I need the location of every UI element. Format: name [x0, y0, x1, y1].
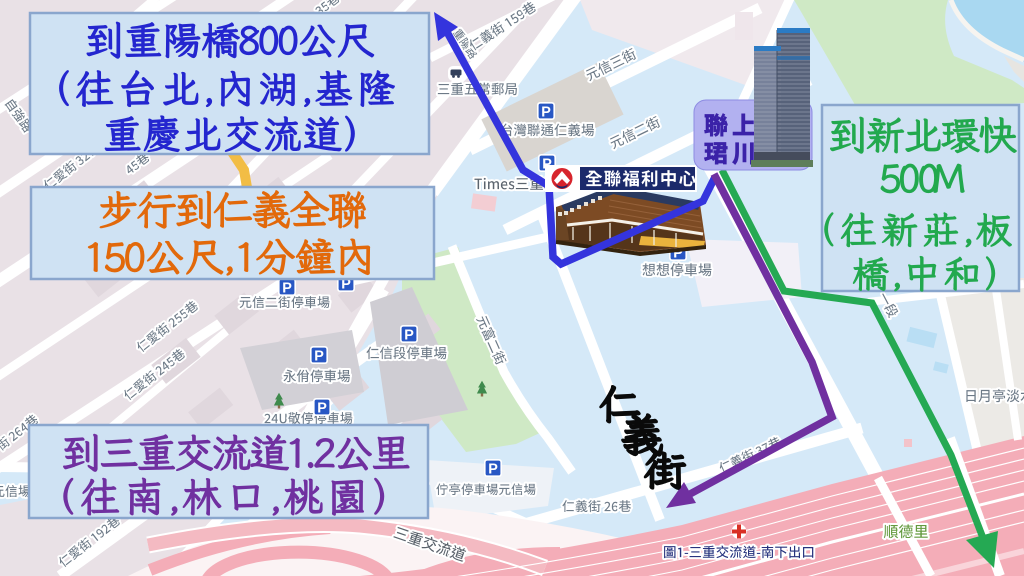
svg-text:P: P	[282, 281, 292, 297]
svg-text:P: P	[488, 462, 498, 478]
svg-text:P: P	[404, 328, 414, 344]
svg-text:P: P	[317, 401, 327, 417]
svg-text:P: P	[314, 349, 324, 365]
svg-text:P: P	[541, 105, 551, 121]
